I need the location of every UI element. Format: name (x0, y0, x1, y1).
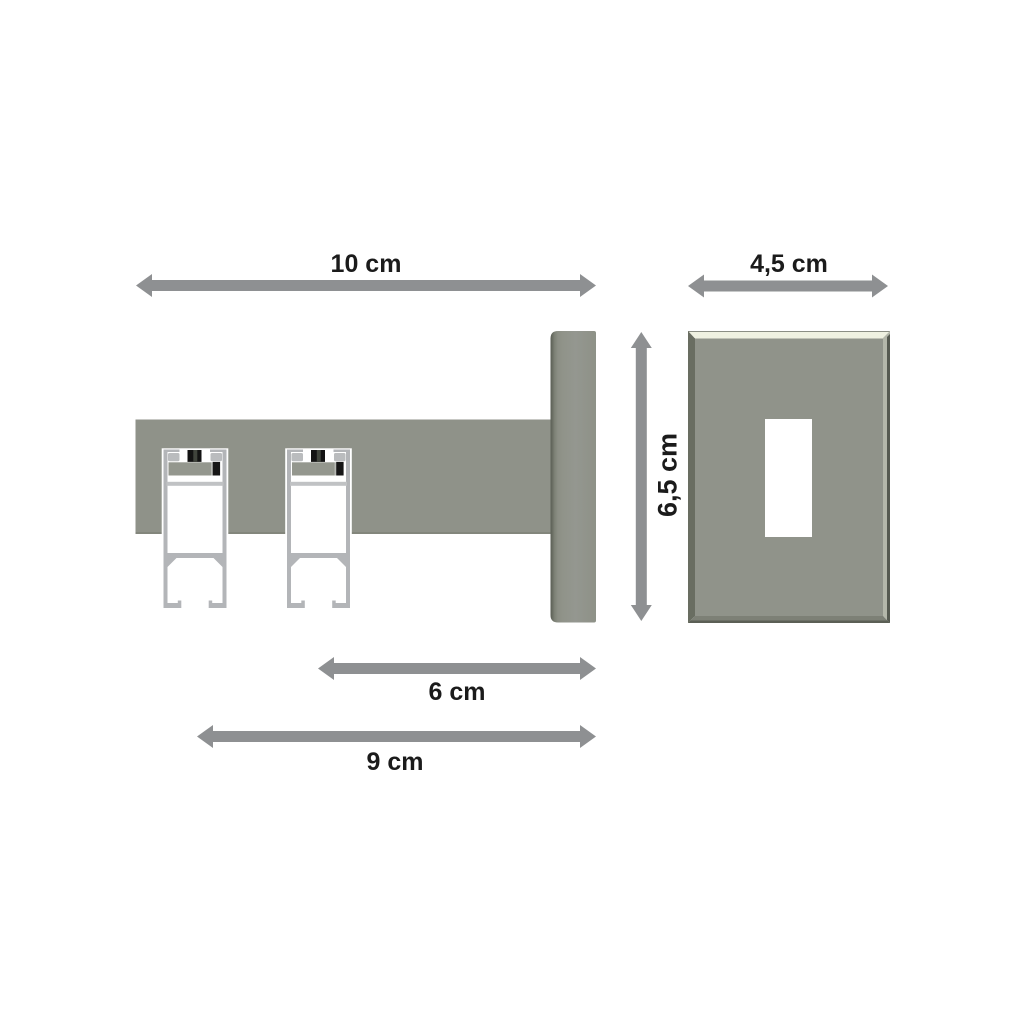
svg-text:10 cm: 10 cm (331, 250, 402, 278)
svg-text:6 cm: 6 cm (429, 678, 486, 706)
svg-text:6,5 cm: 6,5 cm (653, 433, 683, 517)
svg-text:9 cm: 9 cm (367, 748, 424, 776)
svg-text:4,5 cm: 4,5 cm (750, 250, 828, 278)
